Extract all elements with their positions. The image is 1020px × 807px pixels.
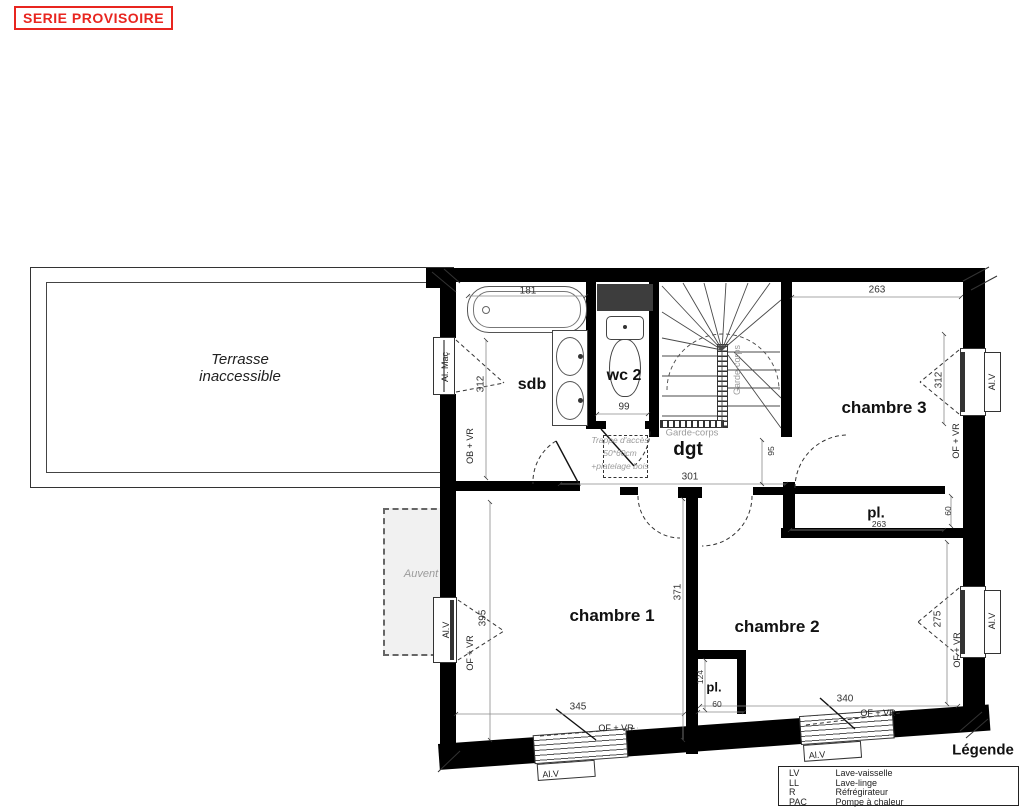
south-wall: Al.V Al.V — [438, 705, 990, 770]
dim-wc-width: 99 — [618, 402, 629, 413]
legend-title: Légende — [952, 742, 1014, 759]
terrace-label-line1: Terrasse — [199, 351, 281, 368]
legend-box: LV Lave-vaisselle LL Lave-linge R Réfrég… — [778, 766, 1019, 806]
wall-segment — [781, 282, 792, 437]
auvent-label: Auvent — [404, 568, 438, 580]
window-type-label: OF + VR — [952, 632, 962, 667]
wall-segment — [781, 528, 965, 538]
wall-segment — [788, 486, 945, 494]
window-type-label: Al.V — [538, 768, 559, 779]
wall-segment — [440, 268, 456, 338]
dimension-lines — [456, 296, 961, 740]
corner-marks — [432, 267, 997, 772]
legend-label: Lave-linge — [836, 778, 878, 788]
floor-plan-page: { "stamp": "SERIE PROVISOIRE", "colors":… — [0, 0, 1020, 800]
dim-ch2-window: 275 — [933, 611, 944, 628]
wall-segment — [963, 416, 985, 586]
dim-ch3-window: 312 — [934, 372, 945, 389]
dim-sdb-window: 312 — [476, 376, 487, 393]
guardrail-label: Garde-corps — [666, 428, 719, 439]
toilet-tank-button — [623, 325, 627, 329]
dim-ch2-bottom: 340 — [837, 694, 854, 705]
bathtub-drain — [482, 306, 490, 314]
wall-segment — [963, 268, 985, 348]
room-label-chambre3: chambre 3 — [841, 398, 926, 418]
sink-faucet — [578, 354, 583, 359]
wall-segment — [891, 705, 991, 738]
window-type-label: Al.V — [441, 622, 451, 639]
window-type-label: OB + VR — [465, 428, 475, 464]
wall-segment — [456, 481, 580, 491]
wall-segment — [595, 421, 606, 429]
legend-row: LV Lave-vaisselle — [789, 769, 1018, 779]
window-tag: Al.V — [803, 741, 862, 762]
wall-segment — [440, 394, 456, 598]
sink-faucet — [578, 398, 583, 403]
trapdoor-note-line2: 50*60cm — [591, 447, 648, 460]
room-label-placard-ch12: pl. — [706, 680, 721, 695]
room-label-chambre1: chambre 1 — [569, 606, 654, 626]
legend-abbr: PAC — [789, 798, 833, 807]
dim-pl12-depth: 124 — [695, 670, 705, 684]
window-type-label: OF + VR — [951, 423, 961, 458]
legend-row: LL Lave-linge — [789, 779, 1018, 789]
window-type-label: OF + VR — [860, 708, 895, 718]
window-tag: Al.V — [537, 760, 596, 781]
dim-pl12-width: 60 — [712, 699, 721, 709]
room-label-sdb: sdb — [518, 376, 546, 394]
wall-segment — [438, 737, 537, 770]
legend-row: PAC Pompe à chaleur — [789, 798, 1018, 807]
dim-pl-ch3-width: 263 — [872, 519, 886, 529]
window-type-label: Al.V — [804, 749, 825, 760]
window-type-label: OF + VR — [465, 635, 475, 670]
dim-ch1-depth: 371 — [673, 584, 684, 601]
window-type-label: Al. Maç — [440, 352, 450, 382]
trapdoor-note: Trappe d'accès 50*60cm +platelage bois — [591, 434, 648, 472]
provisional-stamp: SERIE PROVISOIRE — [14, 6, 173, 30]
window-type-label: Al.V — [987, 613, 997, 630]
terrace-label: Terrasse inaccessible — [199, 351, 281, 385]
wall-segment — [737, 650, 746, 714]
trapdoor-note-line1: Trappe d'accès — [591, 434, 648, 447]
wall-segment — [625, 718, 803, 757]
dim-ch1-bottom: 345 — [570, 702, 587, 713]
guardrail-label-vertical: Garde-corps — [732, 345, 742, 395]
wall-segment — [645, 421, 657, 429]
dim-dgt-width: 301 — [682, 472, 699, 483]
stair-newel-post — [717, 344, 728, 428]
wall-segment — [440, 268, 985, 282]
duct-shaft — [597, 284, 653, 311]
wall-segment — [620, 487, 638, 495]
dim-bathtub: 181 — [520, 286, 537, 297]
terrace-label-line2: inaccessible — [199, 368, 281, 385]
window-glazing — [961, 352, 965, 412]
dim-ch1-window: 395 — [478, 610, 489, 627]
window-type-label: Al.V — [987, 374, 997, 391]
wall-segment — [686, 497, 698, 754]
room-label-chambre2: chambre 2 — [734, 617, 819, 637]
dim-dgt-depth: 95 — [766, 446, 776, 455]
room-label-wc2: wc 2 — [607, 367, 642, 385]
window — [533, 728, 629, 764]
trapdoor-note-line3: +platelage bois — [591, 459, 648, 472]
dim-ch3-top: 263 — [869, 285, 886, 296]
legend-label: Pompe à chaleur — [836, 797, 904, 807]
dim-pl-ch3-depth: 60 — [943, 506, 953, 515]
room-label-dgt: dgt — [673, 439, 703, 461]
window-type-label: OF + VR — [598, 723, 633, 733]
legend-label: Réfrégirateur — [836, 787, 889, 797]
legend-label: Lave-vaisselle — [836, 768, 893, 778]
